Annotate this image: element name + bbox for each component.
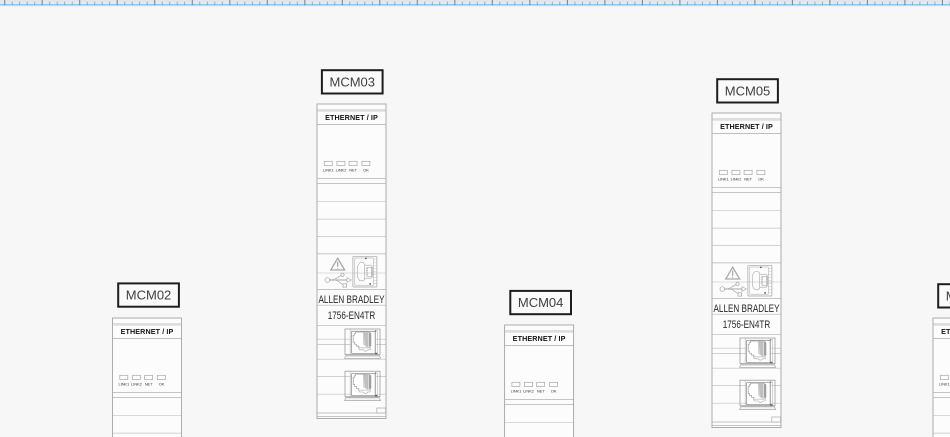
svg-text:MCM04: MCM04 xyxy=(518,295,564,310)
svg-text:MCM06: MCM06 xyxy=(946,288,950,303)
svg-text:MCM03: MCM03 xyxy=(329,74,375,89)
svg-text:MCM02: MCM02 xyxy=(126,288,172,303)
svg-text:MCM05: MCM05 xyxy=(725,83,771,98)
